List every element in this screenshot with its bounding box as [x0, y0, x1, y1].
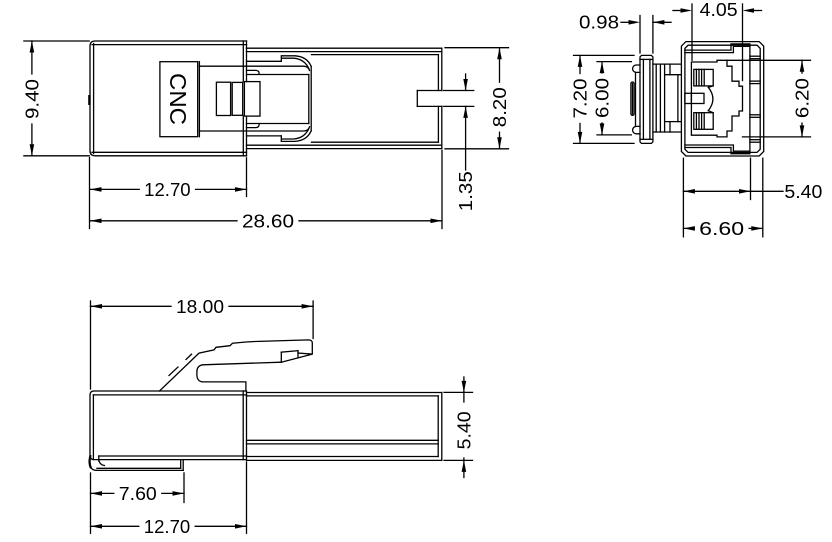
- svg-text:CNC: CNC: [165, 73, 191, 125]
- svg-text:28.60: 28.60: [242, 210, 294, 231]
- svg-text:9.40: 9.40: [21, 79, 42, 119]
- svg-text:12.70: 12.70: [144, 179, 190, 200]
- svg-text:6.00: 6.00: [592, 78, 613, 118]
- svg-text:7.60: 7.60: [119, 483, 157, 504]
- svg-text:8.20: 8.20: [489, 87, 510, 127]
- svg-text:4.05: 4.05: [700, 0, 738, 20]
- svg-text:5.40: 5.40: [453, 411, 474, 449]
- svg-text:0.98: 0.98: [579, 12, 619, 33]
- svg-text:18.00: 18.00: [176, 296, 224, 317]
- svg-text:6.20: 6.20: [792, 78, 813, 118]
- svg-text:7.20: 7.20: [570, 79, 591, 119]
- svg-text:1.35: 1.35: [455, 171, 476, 211]
- svg-text:12.70: 12.70: [144, 516, 190, 537]
- svg-text:5.40: 5.40: [784, 181, 822, 202]
- svg-text:6.60: 6.60: [699, 218, 744, 239]
